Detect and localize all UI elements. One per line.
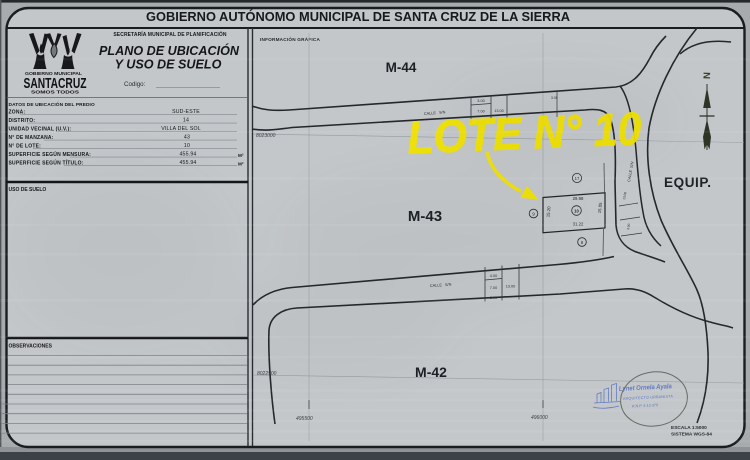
svg-text:M-42: M-42 [415, 364, 447, 380]
svg-text:GOBIERNO AUTÓNOMO MUNICIPAL DE: GOBIERNO AUTÓNOMO MUNICIPAL DE SANTA CRU… [146, 9, 570, 24]
svg-text:N: N [700, 72, 711, 79]
svg-text:14: 14 [183, 118, 189, 124]
svg-text:SECRETARÍA MUNICIPAL DE PLANIF: SECRETARÍA MUNICIPAL DE PLANIFICACIÓN [113, 30, 227, 38]
svg-text:29.98: 29.98 [573, 196, 584, 201]
svg-text:SUD-ESTE: SUD-ESTE [172, 109, 200, 115]
svg-text:PLANO DE UBICACIÓN: PLANO DE UBICACIÓN [99, 43, 240, 58]
svg-text:43: 43 [184, 135, 190, 141]
svg-text:10: 10 [184, 143, 190, 149]
svg-text:455.94: 455.94 [179, 160, 196, 166]
svg-text:10: 10 [574, 208, 579, 213]
svg-text:8022500: 8022500 [257, 371, 277, 377]
svg-text:8023000: 8023000 [256, 133, 276, 139]
svg-text:SUPERFICIE SEGÚN TÍTULO:: SUPERFICIE SEGÚN TÍTULO: [9, 158, 84, 166]
svg-text:M-44: M-44 [386, 60, 417, 75]
svg-text:Codigo:: Codigo: [124, 81, 146, 88]
svg-text:SOMOS TODOS: SOMOS TODOS [31, 90, 80, 96]
svg-text:M²: M² [238, 153, 244, 158]
svg-text:INFORMACIÓN GRÁFICA: INFORMACIÓN GRÁFICA [260, 35, 320, 42]
svg-text:M²: M² [238, 162, 244, 167]
svg-text:OBSERVACIONES: OBSERVACIONES [9, 344, 53, 350]
svg-text:455.94: 455.94 [179, 152, 196, 158]
